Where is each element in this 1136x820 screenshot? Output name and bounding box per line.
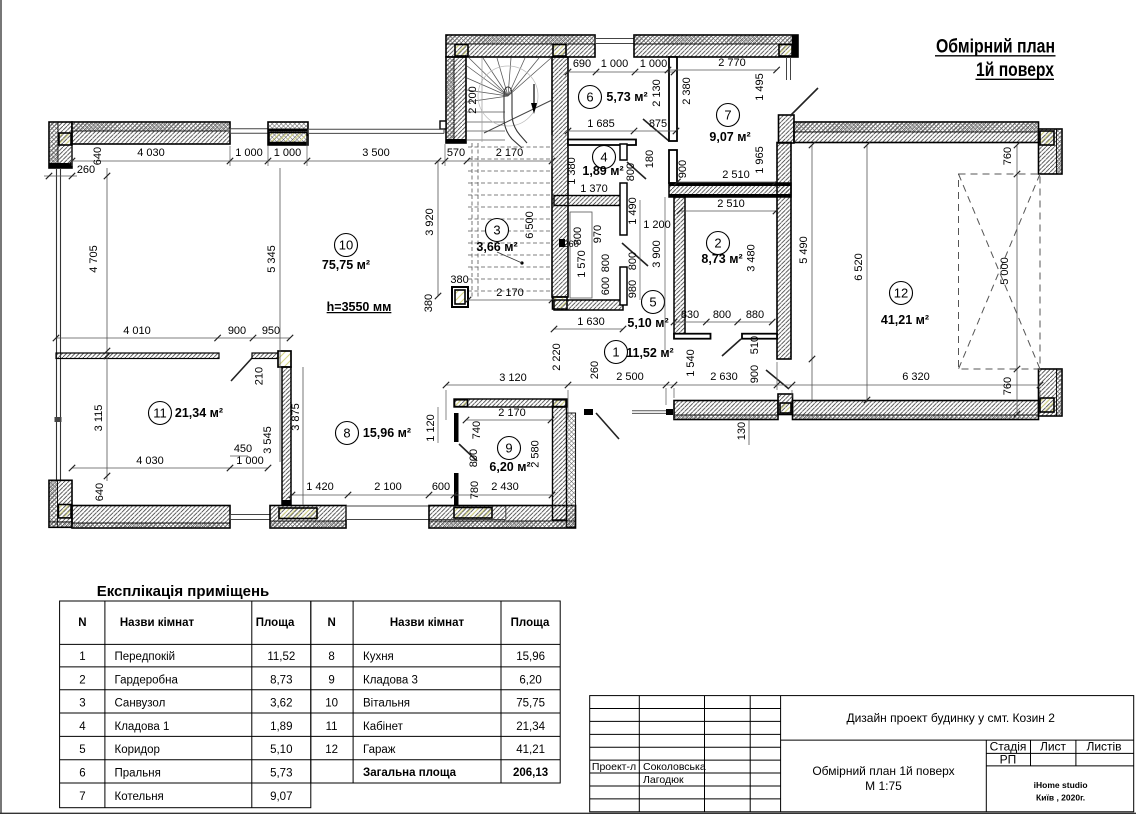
svg-text:5: 5 [79,744,85,756]
svg-text:2 430: 2 430 [491,481,519,493]
svg-text:760: 760 [1002,377,1014,395]
svg-text:Соколовська: Соколовська [643,761,706,773]
svg-text:Проект-л: Проект-л [592,761,636,773]
svg-text:600: 600 [600,277,612,295]
svg-text:1 380: 1 380 [566,157,578,185]
svg-text:2 100: 2 100 [374,481,402,493]
svg-text:Коридор: Коридор [115,744,160,756]
svg-text:6,20: 6,20 [519,674,541,686]
svg-text:600: 600 [432,481,450,493]
svg-text:900: 900 [677,160,689,178]
svg-text:Гараж: Гараж [363,744,396,756]
svg-text:1 420: 1 420 [306,481,334,493]
svg-text:2 500: 2 500 [616,371,644,383]
svg-text:1 000: 1 000 [274,147,302,159]
svg-text:15,96 м²: 15,96 м² [363,426,411,440]
svg-text:Дизайн проект будинку у смт. К: Дизайн проект будинку у смт. Козин 2 [846,711,1055,725]
svg-text:800: 800 [627,252,639,270]
svg-text:Площа: Площа [256,617,295,629]
svg-text:2 510: 2 510 [722,169,750,181]
svg-text:1 200: 1 200 [643,219,671,231]
svg-text:7: 7 [724,108,731,123]
svg-text:900: 900 [749,365,761,383]
svg-text:Лагодюк: Лагодюк [643,774,684,786]
svg-text:3 875: 3 875 [290,403,302,431]
svg-text:970: 970 [592,225,604,243]
svg-text:800: 800 [468,449,480,467]
svg-text:11: 11 [153,406,167,421]
svg-text:Загальна площа: Загальна площа [363,767,457,779]
svg-text:2 130: 2 130 [651,79,663,107]
svg-text:h=3550 мм: h=3550 мм [327,300,392,314]
svg-text:Лист: Лист [1040,740,1067,754]
svg-text:640: 640 [94,483,106,501]
svg-text:1 000: 1 000 [601,58,629,70]
svg-text:206,13: 206,13 [513,767,548,779]
svg-text:900: 900 [228,325,246,337]
svg-text:41,21: 41,21 [516,744,545,756]
svg-text:950: 950 [262,325,280,337]
svg-text:М 1:75: М 1:75 [865,779,902,793]
svg-text:Назви кімнат: Назви кімнат [120,617,195,629]
svg-text:3: 3 [79,698,85,710]
svg-text:Листів: Листів [1086,740,1121,754]
svg-text:Котельня: Котельня [115,791,164,803]
svg-text:6: 6 [586,90,593,105]
svg-text:11,52: 11,52 [267,651,295,663]
svg-text:2: 2 [714,236,721,251]
svg-text:Обмірний план 1й поверх: Обмірний план 1й поверх [812,764,954,778]
svg-text:10: 10 [339,238,353,253]
svg-text:800: 800 [600,254,612,272]
svg-text:3 120: 3 120 [499,372,527,384]
svg-text:Експлікація приміщень: Експлікація приміщень [97,583,270,600]
svg-text:Київ , 2020г.: Київ , 2020г. [1036,793,1085,803]
svg-text:6 320: 6 320 [902,371,930,383]
svg-text:690: 690 [573,58,591,70]
svg-text:1 490: 1 490 [627,197,639,225]
svg-text:5 000: 5 000 [999,257,1011,285]
svg-text:5 490: 5 490 [798,236,810,264]
svg-text:12: 12 [325,744,338,756]
svg-text:РП: РП [1000,753,1017,767]
svg-text:N: N [327,617,335,629]
svg-text:Площа: Площа [511,617,550,629]
svg-text:180: 180 [644,150,656,168]
svg-text:1й поверх: 1й поверх [976,59,1054,81]
svg-text:75,75 м²: 75,75 м² [322,258,370,272]
svg-text:880: 880 [746,309,764,321]
svg-text:2 220: 2 220 [551,343,563,371]
svg-text:1 370: 1 370 [580,183,608,195]
svg-text:2 630: 2 630 [710,371,738,383]
svg-text:Кладова 1: Кладова 1 [115,721,170,733]
svg-text:5,73: 5,73 [270,768,292,780]
svg-text:5 345: 5 345 [266,245,278,273]
svg-text:2: 2 [79,674,85,686]
svg-text:3 545: 3 545 [262,426,274,454]
svg-text:1 630: 1 630 [577,316,605,328]
svg-text:41,21 м²: 41,21 м² [881,313,929,327]
svg-text:8: 8 [343,426,350,441]
svg-text:780: 780 [469,481,481,499]
svg-text:5: 5 [649,295,656,310]
svg-text:1 000: 1 000 [236,455,264,467]
svg-text:1 540: 1 540 [685,349,697,377]
svg-text:4 030: 4 030 [136,455,164,467]
svg-text:75,75: 75,75 [516,698,545,710]
svg-text:1: 1 [612,345,619,360]
svg-text:iHome studio: iHome studio [1034,780,1088,790]
svg-text:9,07 м²: 9,07 м² [709,130,750,144]
svg-text:875: 875 [649,118,667,130]
svg-text:7: 7 [79,791,85,803]
svg-text:640: 640 [92,147,104,165]
svg-text:2 170: 2 170 [496,147,524,159]
svg-text:3 920: 3 920 [424,208,436,236]
svg-text:3 480: 3 480 [746,244,758,272]
svg-text:1 685: 1 685 [587,118,615,130]
svg-text:830: 830 [681,309,699,321]
svg-text:5,73 м²: 5,73 м² [606,90,647,104]
svg-text:2 580: 2 580 [530,440,542,468]
svg-text:450: 450 [234,443,252,455]
svg-text:760: 760 [1002,147,1014,165]
svg-text:130: 130 [736,422,748,440]
svg-text:6: 6 [79,768,85,780]
svg-text:Вітальня: Вітальня [363,698,410,710]
svg-text:4: 4 [79,721,86,733]
svg-text:4: 4 [600,150,607,165]
svg-text:Кабінет: Кабінет [363,721,404,733]
svg-text:10: 10 [325,698,338,710]
svg-text:Назви кімнат: Назви кімнат [390,617,465,629]
svg-text:2 510: 2 510 [717,198,745,210]
svg-text:21,34: 21,34 [516,721,545,733]
svg-text:3,66 м²: 3,66 м² [476,240,517,254]
svg-text:1 120: 1 120 [425,414,437,442]
svg-text:1 965: 1 965 [754,146,766,174]
svg-text:11,52 м²: 11,52 м² [626,346,673,360]
svg-text:Обмірний план: Обмірний план [936,36,1055,58]
svg-text:510: 510 [749,336,761,354]
svg-text:9: 9 [505,441,512,456]
svg-text:2 200: 2 200 [467,86,479,114]
svg-text:2 380: 2 380 [681,77,693,105]
svg-text:8,73 м²: 8,73 м² [701,252,742,266]
svg-text:Передпокій: Передпокій [115,651,176,663]
svg-text:Кухня: Кухня [363,651,394,663]
svg-text:740: 740 [471,421,483,439]
svg-text:9: 9 [328,674,334,686]
svg-text:Кладова 3: Кладова 3 [363,674,418,686]
svg-text:210: 210 [254,367,266,385]
svg-text:570: 570 [447,147,465,159]
svg-text:15,96: 15,96 [516,651,545,663]
svg-text:1 570: 1 570 [576,250,588,278]
svg-text:Пральня: Пральня [115,768,161,780]
svg-text:Стадія: Стадія [990,740,1027,754]
svg-text:8,73: 8,73 [270,674,292,686]
svg-text:3 900: 3 900 [651,240,663,268]
svg-text:1 000: 1 000 [640,58,668,70]
svg-text:1,89: 1,89 [270,721,292,733]
svg-text:2 170: 2 170 [498,407,526,419]
svg-text:1 000: 1 000 [235,147,263,159]
svg-text:6,20 м²: 6,20 м² [489,460,530,474]
svg-text:260: 260 [589,361,601,379]
svg-text:1,89 м²: 1,89 м² [582,164,623,178]
svg-text:3,62: 3,62 [270,698,292,710]
svg-text:12: 12 [894,286,908,301]
svg-text:9,07: 9,07 [270,791,292,803]
svg-text:3 115: 3 115 [93,405,105,432]
svg-text:Санвузол: Санвузол [115,698,166,710]
svg-text:6 500: 6 500 [524,211,536,239]
svg-text:2 770: 2 770 [718,57,746,69]
svg-text:8: 8 [328,651,334,663]
svg-text:4 705: 4 705 [88,245,100,273]
svg-text:5,10: 5,10 [270,744,292,756]
svg-text:3: 3 [493,223,500,238]
svg-text:1: 1 [79,651,85,663]
svg-text:11: 11 [326,721,338,733]
svg-text:Гардеробна: Гардеробна [115,674,179,686]
svg-text:3 500: 3 500 [362,147,390,159]
svg-text:1 495: 1 495 [754,73,766,101]
svg-text:4 010: 4 010 [123,325,151,337]
svg-text:800: 800 [625,163,637,181]
svg-text:2 170: 2 170 [496,287,524,299]
svg-text:6 520: 6 520 [853,253,865,281]
svg-text:800: 800 [713,309,731,321]
svg-text:21,34 м²: 21,34 м² [175,406,223,420]
svg-text:380: 380 [450,274,468,286]
svg-text:260: 260 [563,239,579,250]
svg-text:N: N [78,617,86,629]
svg-text:4 030: 4 030 [137,147,165,159]
svg-text:5,10 м²: 5,10 м² [627,316,668,330]
svg-text:380: 380 [423,294,435,312]
svg-text:980: 980 [627,280,639,298]
